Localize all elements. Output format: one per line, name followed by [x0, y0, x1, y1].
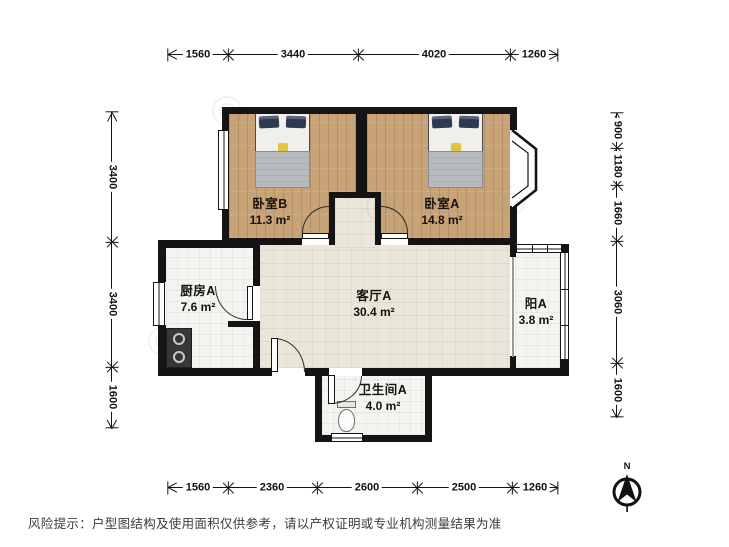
stove-burner-icon: [173, 351, 185, 363]
room-area: 3.8 m²: [519, 313, 554, 327]
wall-segment: [363, 435, 432, 442]
dimension-value: 2600: [352, 482, 382, 495]
dimension-tick: [611, 235, 624, 248]
room-label-bedroom-a: 卧室A 14.8 m²: [421, 193, 462, 227]
dimension-tick: [106, 236, 119, 249]
north-label: N: [624, 461, 631, 472]
wall-segment: [228, 321, 253, 327]
bay-window-bedroom-a: [511, 122, 541, 214]
room-area: 14.8 m²: [421, 213, 462, 227]
dimension-tick: [411, 482, 424, 495]
door-leaf-bedroom-b: [302, 233, 329, 239]
window-kitchen: [153, 282, 165, 326]
dimension-line: [111, 112, 112, 428]
wall-segment: [305, 368, 329, 376]
wall-segment: [158, 368, 272, 376]
dimension-value: 1560: [183, 49, 213, 62]
wall-segment: [253, 240, 260, 286]
wall-segment: [253, 321, 260, 368]
stove-burner-icon: [173, 333, 185, 345]
dimension-value: 1260: [520, 482, 550, 495]
dimension-tick: [611, 357, 624, 370]
door-leaf-bedroom-a: [381, 233, 408, 239]
dimension-value: 3440: [278, 49, 308, 62]
dimension-value: 3060: [611, 287, 624, 317]
kitchen-counter-stove: [166, 328, 192, 368]
wall-segment: [329, 192, 381, 198]
wall-segment: [315, 376, 322, 442]
window-bathroom: [331, 433, 363, 442]
door-opening-bedroom-a: [381, 238, 408, 245]
floor-plan-canvas: 卧室B 11.3 m² 卧室A 14.8 m² 厨房A 7.6 m² 客厅A 3…: [0, 0, 729, 547]
room-label-living: 客厅A 30.4 m²: [353, 285, 394, 319]
dimension-value: 1600: [106, 382, 119, 412]
room-name: 卧室B: [250, 193, 291, 212]
bed-pillow: [259, 115, 280, 128]
wall-segment: [510, 356, 516, 368]
room-name: 阳A: [519, 293, 554, 312]
door-leaf-bathroom: [328, 375, 335, 404]
bed-pillow: [432, 115, 453, 128]
room-area: 7.6 m²: [180, 300, 216, 314]
door-opening-bedroom-b: [302, 238, 329, 245]
dimension-tick: [106, 361, 119, 374]
dimension-value: 3400: [106, 162, 119, 192]
door-leaf-kitchen: [247, 286, 253, 320]
wall-segment: [362, 368, 510, 376]
window-bedroom-b: [218, 130, 229, 210]
dimension-value: 1560: [183, 482, 213, 495]
bed-bedroom-b: [255, 112, 310, 188]
room-name: 卫生间A: [359, 379, 408, 398]
wall-segment: [222, 107, 517, 114]
dimension-value: 1600: [611, 375, 624, 405]
wall-segment: [158, 240, 260, 248]
wall-segment: [329, 192, 335, 245]
room-area: 4.0 m²: [359, 399, 408, 413]
room-label-kitchen: 厨房A 7.6 m²: [180, 280, 216, 314]
wall-segment: [510, 368, 569, 376]
room-area: 11.3 m²: [250, 213, 291, 227]
wall-segment: [560, 360, 569, 368]
dimension-value: 2500: [449, 482, 479, 495]
room-label-bedroom-b: 卧室B 11.3 m²: [250, 193, 291, 227]
bed-blanket: [255, 151, 310, 188]
dimension-value: 1260: [519, 49, 549, 62]
room-name: 客厅A: [353, 285, 394, 304]
dimension-tick: [222, 482, 235, 495]
room-label-balcony: 阳A 3.8 m²: [519, 293, 554, 327]
dimension-tick: [222, 49, 235, 62]
dimension-value: 4020: [419, 49, 449, 62]
bed-blanket: [428, 151, 483, 188]
room-label-bathroom: 卫生间A 4.0 m²: [359, 379, 408, 413]
room-area: 30.4 m²: [353, 305, 394, 319]
door-leaf-entry: [271, 338, 278, 372]
room-name: 厨房A: [180, 280, 216, 299]
dimension-tick: [311, 482, 324, 495]
window-balcony-right: [560, 252, 569, 360]
wall-segment: [158, 240, 166, 282]
balcony-glass-divider: [512, 257, 514, 357]
wall-segment: [425, 376, 432, 442]
dimension-value: 900: [611, 118, 624, 142]
bed-pillow: [286, 116, 306, 129]
bed-bedroom-a: [428, 112, 483, 188]
compass-stem: [626, 505, 628, 512]
room-name: 卧室A: [421, 193, 462, 212]
dimension-tick: [504, 49, 517, 62]
dimension-value: 3400: [106, 289, 119, 319]
dimension-value: 1660: [611, 198, 624, 228]
dimension-value: 2360: [257, 482, 287, 495]
dimension-tick: [506, 482, 519, 495]
disclaimer-text: 风险提示：户型图结构及使用面积仅供参考，请以产权证明或专业机构测量结果为准: [28, 513, 502, 532]
door-opening-kitchen: [253, 286, 260, 321]
compass-needle: [618, 474, 637, 502]
wall-segment: [408, 238, 517, 245]
compass: N: [605, 458, 650, 516]
dimension-tick: [352, 49, 365, 62]
bed-pillow: [459, 116, 479, 129]
toilet-bowl: [338, 409, 355, 432]
wall-segment: [222, 107, 229, 130]
dimension-value: 1180: [611, 151, 624, 181]
wall-segment: [356, 113, 367, 192]
window-balcony-top: [516, 244, 562, 253]
